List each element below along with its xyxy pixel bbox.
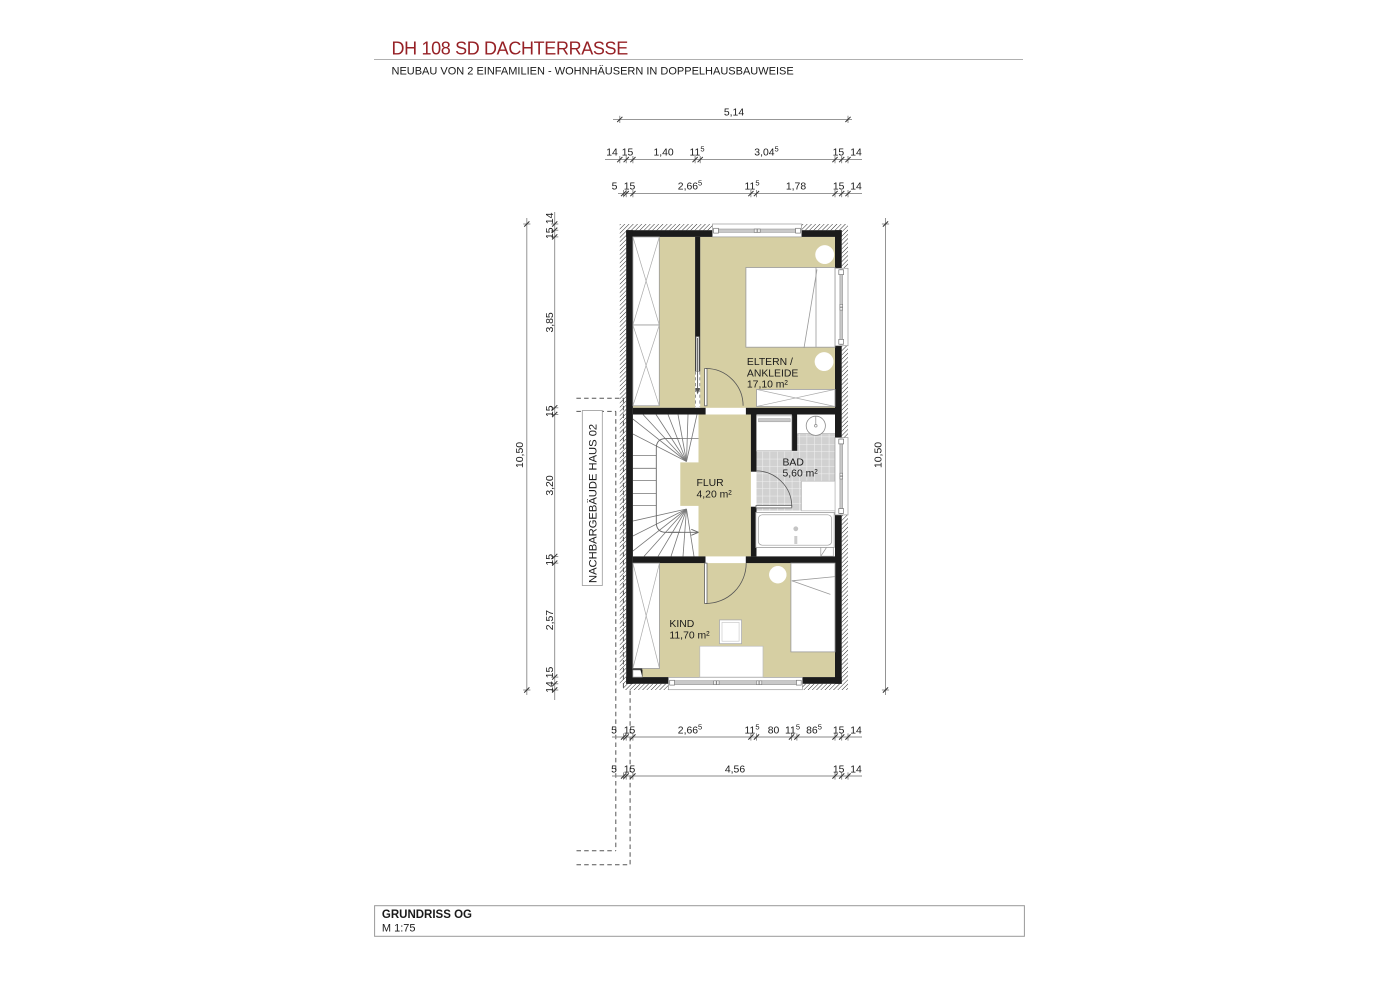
svg-text:ELTERN /: ELTERN /: [747, 357, 793, 368]
svg-text:BAD: BAD: [783, 457, 804, 468]
svg-text:15: 15: [833, 147, 845, 158]
svg-text:15: 15: [833, 764, 845, 775]
svg-text:14: 14: [606, 147, 618, 158]
svg-text:10,50: 10,50: [515, 442, 526, 468]
svg-text:3,20: 3,20: [545, 475, 556, 495]
svg-text:M 1:75: M 1:75: [382, 923, 416, 935]
svg-text:ANKLEIDE: ANKLEIDE: [747, 368, 798, 379]
svg-text:15: 15: [833, 725, 845, 736]
svg-text:5,14: 5,14: [724, 107, 744, 118]
svg-text:14: 14: [850, 725, 862, 736]
svg-text:15: 15: [545, 227, 556, 239]
svg-text:15: 15: [545, 405, 556, 417]
svg-text:15: 15: [622, 147, 634, 158]
svg-text:4,56: 4,56: [725, 764, 745, 775]
svg-text:KIND: KIND: [669, 619, 694, 630]
svg-text:NEUBAU VON 2 EINFAMILIEN - WOH: NEUBAU VON 2 EINFAMILIEN - WOHNHÄUSERN I…: [392, 65, 794, 77]
svg-text:2,57: 2,57: [545, 610, 556, 630]
svg-text:5: 5: [612, 182, 618, 193]
svg-text:GRUNDRISS OG: GRUNDRISS OG: [382, 909, 472, 921]
svg-text:15: 15: [624, 182, 636, 193]
svg-text:15: 15: [545, 667, 556, 679]
svg-text:FLUR: FLUR: [697, 478, 725, 489]
svg-text:5: 5: [611, 725, 617, 736]
svg-text:14: 14: [545, 212, 556, 224]
svg-text:15: 15: [624, 764, 636, 775]
svg-text:14: 14: [850, 147, 862, 158]
svg-text:10,50: 10,50: [874, 442, 885, 468]
svg-text:17,10 m²: 17,10 m²: [747, 380, 789, 391]
svg-text:5,60 m²: 5,60 m²: [783, 469, 819, 480]
svg-text:3,85: 3,85: [545, 312, 556, 332]
svg-text:5: 5: [611, 764, 617, 775]
svg-text:4,20 m²: 4,20 m²: [697, 489, 733, 500]
svg-text:14: 14: [545, 681, 556, 693]
svg-text:15: 15: [624, 725, 636, 736]
svg-text:14: 14: [850, 182, 862, 193]
svg-text:1,40: 1,40: [653, 147, 673, 158]
svg-text:11,70 m²: 11,70 m²: [669, 631, 710, 642]
svg-text:1,78: 1,78: [786, 182, 806, 193]
svg-text:15: 15: [545, 554, 556, 566]
svg-text:15: 15: [833, 182, 845, 193]
svg-text:14: 14: [850, 764, 862, 775]
svg-text:DH 108 SD DACHTERRASSE: DH 108 SD DACHTERRASSE: [392, 39, 629, 59]
svg-text:NACHBARGEBÄUDE HAUS 02: NACHBARGEBÄUDE HAUS 02: [587, 424, 599, 583]
svg-text:80: 80: [768, 725, 780, 736]
